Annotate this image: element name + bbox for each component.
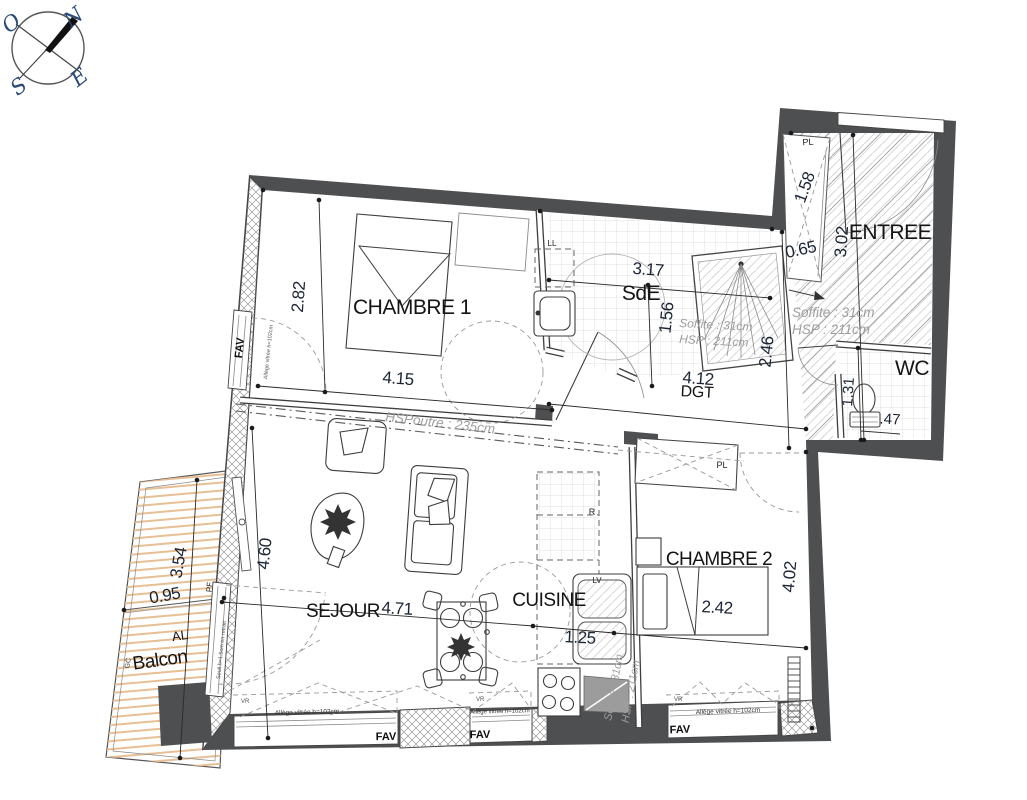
compass-rose: N O S E (0, 2, 93, 101)
dim-1-31: 1.31 (839, 377, 858, 407)
fridge-label: R (589, 507, 596, 517)
fav-label-sejour: FAV (376, 731, 397, 743)
bottom-wall-insulation-1 (400, 707, 470, 748)
chambre1-label: CHAMBRE 1 (353, 296, 471, 319)
fav-label-cuisine: FAV (470, 729, 491, 741)
sde-faucet-icon (536, 311, 541, 316)
fav-label-chambre2: FAV (669, 724, 691, 737)
ll-label: LL (548, 239, 557, 248)
pl-label-entree: PL (802, 137, 814, 148)
dim-4-12: 4.12 (682, 368, 715, 389)
dim-4-60: 4.60 (253, 537, 275, 570)
chambre2-nightstand (636, 538, 661, 565)
dim-3-02: 3.02 (831, 226, 852, 258)
vr-label-2: VR (476, 697, 485, 703)
dim-2-46: 2.46 (755, 335, 777, 368)
sejour-window (234, 712, 398, 747)
dim-4-71: 4.71 (381, 598, 413, 619)
entree-soffite-note: Soffite : 31cm (792, 305, 875, 320)
compass-west-label: O (0, 8, 26, 38)
floor-plan-page: N O S E (0, 0, 1027, 800)
toilet-tank (850, 412, 880, 427)
floor-plan-drawing: N O S E (0, 0, 1027, 800)
radiator (788, 657, 800, 722)
compass-south-label: S (6, 73, 32, 101)
compass-north-label: N (58, 2, 89, 33)
vr-label-3: VR (674, 697, 683, 703)
cooktop (538, 668, 580, 716)
entree-label: ENTREE (849, 221, 932, 244)
table-plant-icon (447, 633, 475, 661)
compass-east-label: E (65, 63, 93, 92)
pf-label: PF (204, 581, 214, 592)
vr-label-1: VR (241, 699, 250, 705)
sejour-label: SEJOUR (306, 601, 380, 622)
chambre2-label: CHAMBRE 2 (666, 549, 772, 570)
dim-0-47: .47 (879, 410, 901, 428)
balcony-wall-mass (158, 682, 212, 746)
dim-4-02: 4.02 (779, 561, 801, 594)
dim-4-15: 4.15 (382, 368, 415, 389)
al-label: AL (171, 627, 189, 644)
pl-label-chambre2: PL (716, 460, 727, 470)
dim-1-56: 1.56 (655, 301, 677, 334)
dim-1-25: 1.25 (564, 627, 596, 648)
sde-label: SdE (622, 282, 661, 305)
dishwasher-label: LV (592, 576, 602, 585)
cuisine-label: CUISINE (512, 590, 586, 611)
entree-hsp-note: HSP : 211cm (792, 322, 870, 337)
dim-2-82: 2.82 (288, 281, 309, 313)
plant-icon (320, 504, 356, 540)
dim-2-42: 2.42 (701, 597, 733, 618)
fav-label-chambre1: FAV (233, 336, 247, 358)
wc-label: WC (895, 357, 929, 380)
dim-3-17: 3.17 (632, 259, 665, 280)
